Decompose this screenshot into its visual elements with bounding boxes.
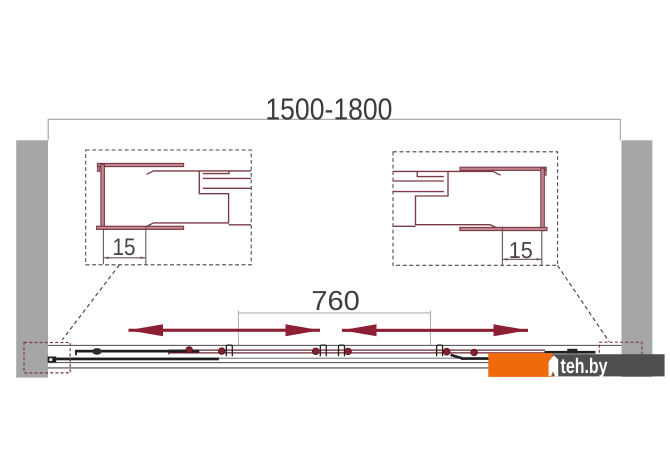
svg-text:1500-1800: 1500-1800 xyxy=(265,93,392,127)
svg-text:teh.by: teh.by xyxy=(561,355,608,378)
svg-text:760: 760 xyxy=(311,285,360,316)
svg-text:15: 15 xyxy=(113,234,136,261)
svg-text:15: 15 xyxy=(509,237,533,263)
